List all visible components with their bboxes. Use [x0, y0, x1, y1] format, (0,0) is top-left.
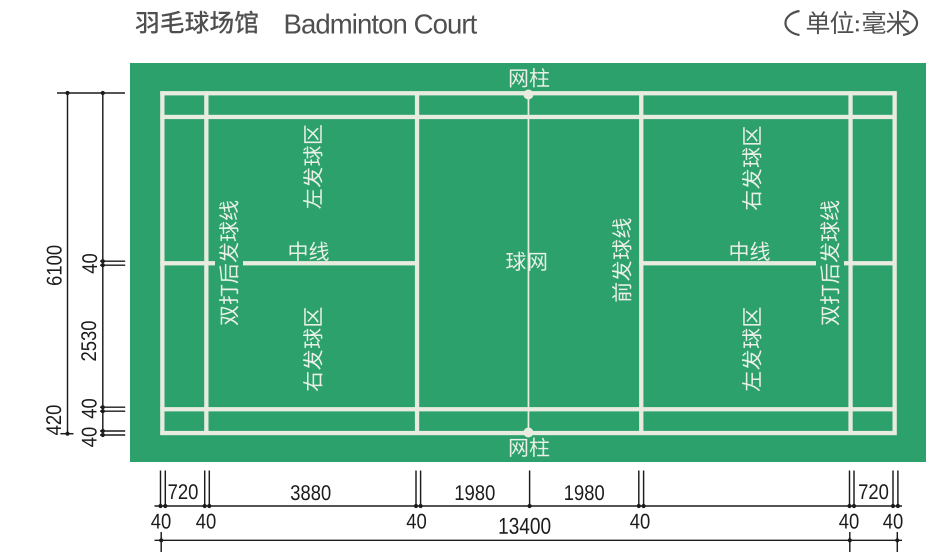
svg-text:Badminton Court: Badminton Court	[284, 9, 478, 40]
